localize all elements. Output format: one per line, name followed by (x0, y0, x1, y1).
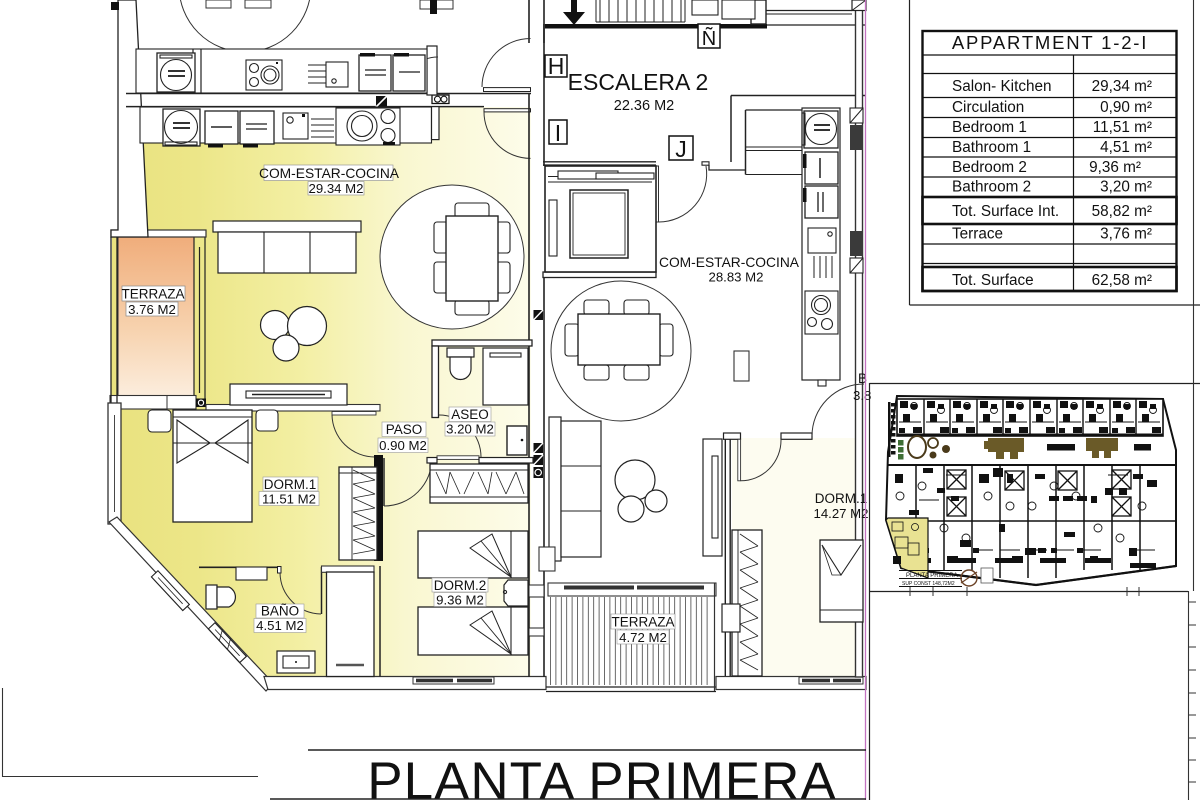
svg-text:Tot. Surface Int.: Tot. Surface Int. (952, 203, 1059, 220)
svg-text:11,51 m²: 11,51 m² (1093, 119, 1152, 136)
svg-text:0,90 m²: 0,90 m² (1100, 99, 1152, 116)
svg-text:3.76 M2: 3.76 M2 (128, 302, 176, 317)
svg-text:COM-ESTAR-COCINA: COM-ESTAR-COCINA (259, 166, 400, 181)
svg-text:58,82 m²: 58,82 m² (1092, 203, 1152, 220)
svg-text:9.36 M2: 9.36 M2 (436, 593, 484, 608)
svg-text:J: J (675, 136, 687, 162)
svg-text:3,20 m²: 3,20 m² (1100, 179, 1152, 196)
svg-text:PASO: PASO (386, 422, 423, 437)
svg-text:Ñ: Ñ (702, 26, 716, 50)
svg-text:Terrace: Terrace (952, 226, 1003, 243)
svg-text:Salon- Kitchen: Salon- Kitchen (952, 78, 1052, 95)
svg-text:3,76 m²: 3,76 m² (1100, 226, 1152, 243)
svg-text:DORM.2: DORM.2 (434, 578, 487, 593)
svg-text:28.83 M2: 28.83 M2 (709, 270, 764, 285)
svg-text:Circulation: Circulation (952, 99, 1024, 116)
svg-text:0.90 M2: 0.90 M2 (379, 438, 427, 453)
svg-text:3.8: 3.8 (853, 388, 871, 403)
svg-text:DORM.1: DORM.1 (815, 491, 868, 506)
svg-text:4.72 M2: 4.72 M2 (619, 630, 667, 645)
svg-text:9,36 m²: 9,36 m² (1089, 159, 1141, 176)
svg-text:H: H (548, 53, 565, 79)
svg-text:29.34 M2: 29.34 M2 (309, 181, 364, 196)
svg-text:COM-ESTAR-COCINA: COM-ESTAR-COCINA (659, 255, 800, 270)
svg-text:29,34 m²: 29,34 m² (1092, 78, 1152, 95)
svg-text:Bathroom 2: Bathroom 2 (952, 179, 1031, 196)
svg-text:Bathroom 1: Bathroom 1 (952, 139, 1031, 156)
svg-text:Tot. Surface: Tot. Surface (952, 272, 1034, 289)
svg-text:BAÑO: BAÑO (261, 604, 299, 619)
svg-text:Bedroom 2: Bedroom 2 (952, 159, 1027, 176)
svg-text:TERRAZA: TERRAZA (121, 287, 184, 302)
svg-text:SUP CONST 148,72M2: SUP CONST 148,72M2 (902, 581, 955, 587)
svg-text:11.51 M2: 11.51 M2 (262, 492, 316, 507)
svg-text:ESCALERA 2: ESCALERA 2 (568, 69, 709, 95)
svg-text:I: I (555, 120, 561, 146)
svg-text:PLANTA PRIMERA: PLANTA PRIMERA (906, 573, 958, 579)
svg-text:4,51 m²: 4,51 m² (1100, 139, 1152, 156)
svg-text:Bedroom 1: Bedroom 1 (952, 119, 1027, 136)
svg-text:4.51 M2: 4.51 M2 (256, 618, 304, 633)
svg-text:3.20 M2: 3.20 M2 (446, 422, 494, 437)
svg-text:ASEO: ASEO (451, 407, 489, 422)
svg-text:DORM.1: DORM.1 (264, 477, 317, 492)
svg-text:62,58 m²: 62,58 m² (1092, 272, 1152, 289)
svg-text:22.36 M2: 22.36 M2 (614, 98, 674, 114)
svg-text:TERRAZA: TERRAZA (611, 615, 674, 630)
svg-text:APPARTMENT 1-2-I: APPARTMENT 1-2-I (952, 32, 1148, 53)
svg-text:PLANTA PRIMERA: PLANTA PRIMERA (367, 752, 837, 800)
svg-text:14.27 M2: 14.27 M2 (814, 506, 869, 521)
